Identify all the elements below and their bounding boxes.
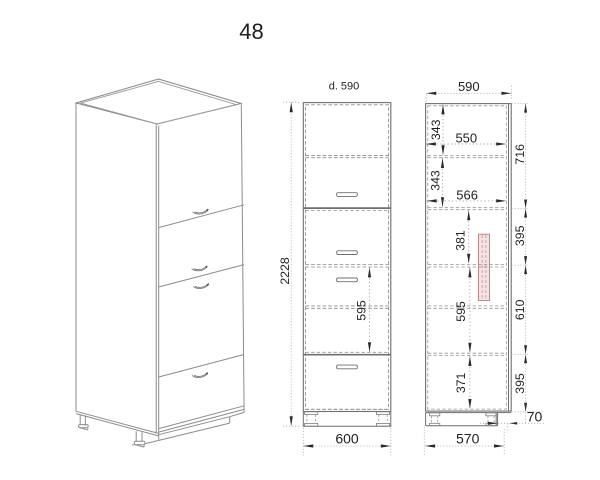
svg-text:48: 48	[239, 19, 263, 44]
svg-text:343: 343	[429, 119, 443, 140]
svg-text:371: 371	[454, 372, 468, 393]
svg-text:595: 595	[354, 300, 368, 321]
svg-text:381: 381	[453, 230, 467, 251]
svg-text:395: 395	[513, 373, 527, 394]
svg-text:595: 595	[454, 301, 468, 322]
svg-text:600: 600	[335, 431, 359, 447]
svg-text:716: 716	[513, 144, 527, 165]
svg-text:70: 70	[527, 409, 543, 425]
svg-text:2228: 2228	[278, 257, 292, 285]
svg-text:395: 395	[513, 225, 527, 246]
svg-text:d. 590: d. 590	[329, 81, 360, 93]
svg-text:610: 610	[513, 299, 527, 320]
svg-text:550: 550	[455, 131, 477, 146]
svg-text:570: 570	[456, 431, 480, 447]
svg-text:590: 590	[458, 79, 480, 94]
svg-text:343: 343	[428, 170, 442, 191]
svg-text:566: 566	[456, 187, 478, 202]
